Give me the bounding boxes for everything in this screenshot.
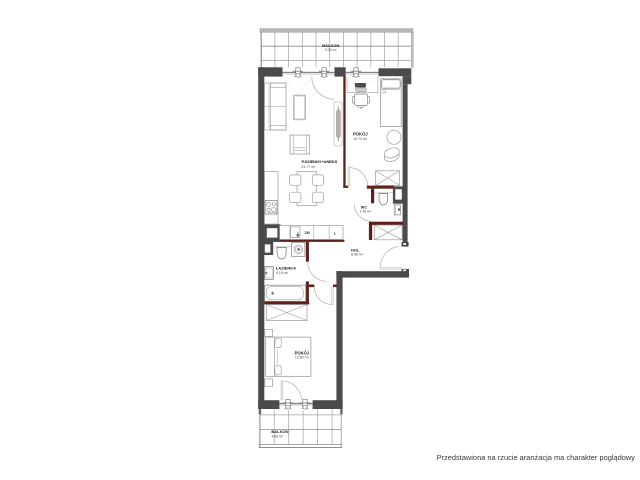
svg-text:9.30 m²: 9.30 m² — [325, 48, 337, 52]
svg-text:10.73 m²: 10.73 m² — [353, 137, 368, 141]
svg-text:HOL: HOL — [351, 247, 360, 252]
svg-text:Przedstawiona na rzucie aranża: Przedstawiona na rzucie aranżacja ma cha… — [437, 453, 636, 462]
svg-text:8.98 m²: 8.98 m² — [351, 253, 364, 257]
svg-text:4.96 m²: 4.96 m² — [272, 434, 284, 438]
svg-text:ZM: ZM — [304, 231, 309, 235]
svg-text:P.DZIENNY+ANEKS: P.DZIENNY+ANEKS — [302, 159, 338, 164]
svg-text:ŁAZIENKA: ŁAZIENKA — [276, 266, 296, 271]
svg-text:1.48 m²: 1.48 m² — [360, 209, 372, 213]
svg-text:POKÓJ: POKÓJ — [353, 132, 368, 137]
svg-text:12.80 m²: 12.80 m² — [295, 356, 310, 360]
svg-text:4.19 m²: 4.19 m² — [276, 271, 289, 275]
svg-text:BALKON: BALKON — [322, 43, 339, 48]
svg-text:21.77 m²: 21.77 m² — [302, 165, 317, 169]
